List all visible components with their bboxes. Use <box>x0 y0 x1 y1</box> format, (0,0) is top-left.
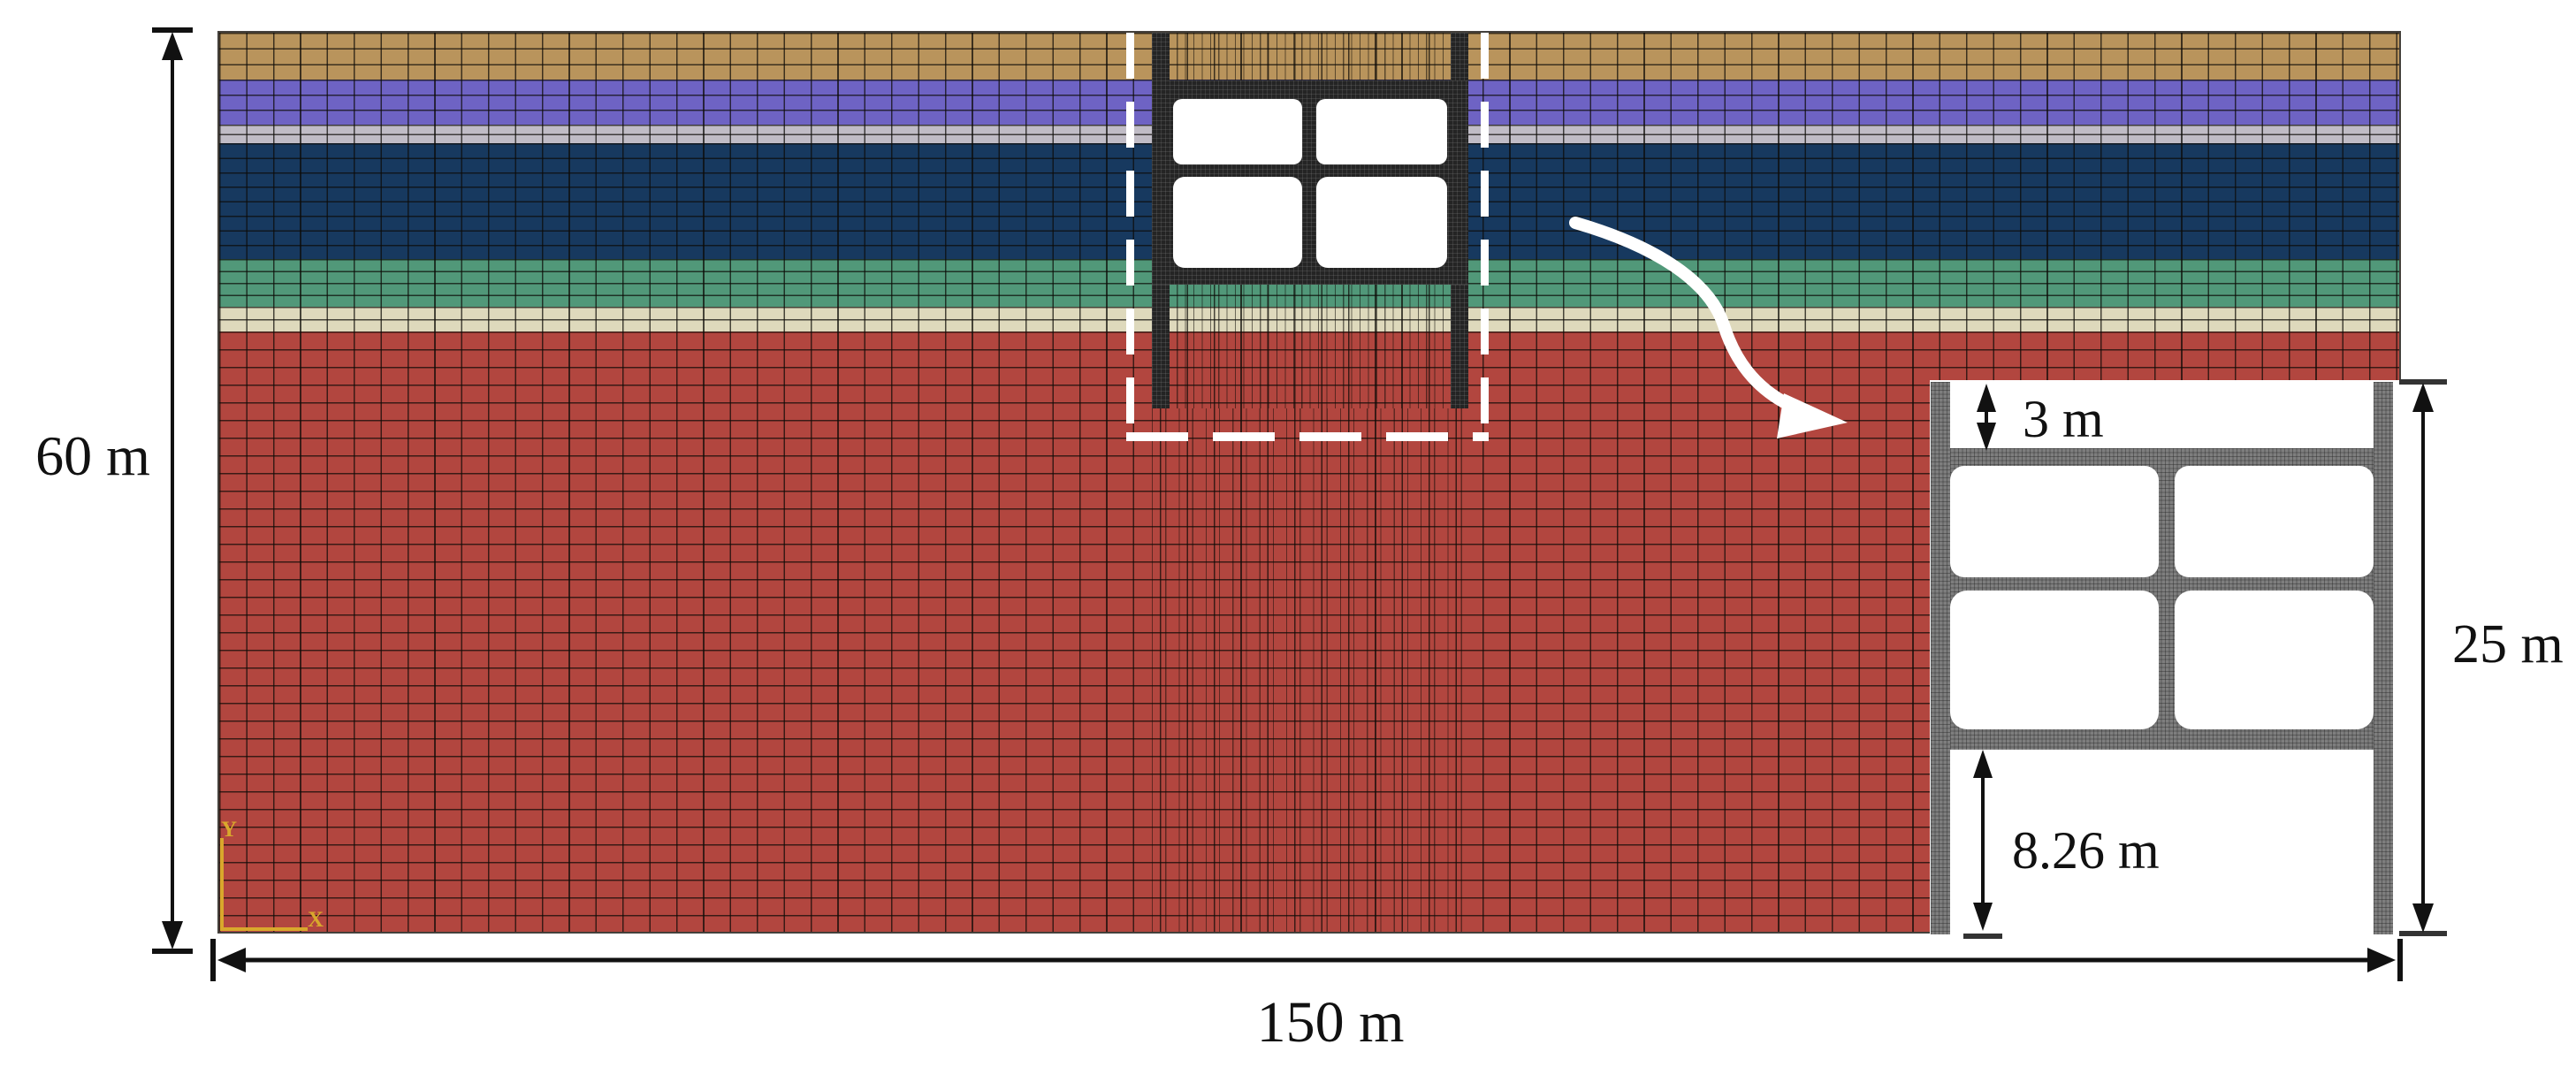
station-cell-lower-left <box>1173 177 1302 268</box>
dim-label-826m: 8.26 m <box>2012 824 2160 877</box>
x-axis-label: X <box>308 909 324 931</box>
inset-cell-lower-right <box>2175 591 2374 729</box>
callout-dashed-right <box>1481 33 1489 435</box>
callout-dashed-left <box>1126 33 1134 435</box>
callout-dashed-bottom <box>1126 432 1489 441</box>
station-cell-upper-left <box>1173 99 1302 164</box>
inset-wall-left <box>1931 382 1950 934</box>
dim-label-25m: 25 m <box>2452 617 2564 672</box>
dim60-arrow-down <box>162 921 183 949</box>
inset-wall-right <box>2374 382 2393 934</box>
dim-label-3m: 3 m <box>2023 393 2104 446</box>
dim-label-150m: 150 m <box>1233 994 1428 1052</box>
inset-cell-upper-right <box>2175 466 2374 577</box>
inset-cell-lower-left <box>1950 591 2159 729</box>
dim60-arrow-up <box>162 32 183 60</box>
dim150-arrow-left <box>217 948 246 972</box>
dim60-top-tick <box>152 27 193 33</box>
station-cell-upper-right <box>1316 99 1447 164</box>
dim-label-60m: 60 m <box>31 428 155 484</box>
fem-mesh-figure: 60 m 150 m 3 m 25 m 8.26 m Y X <box>0 0 2576 1090</box>
station-cell-lower-right <box>1316 177 1447 268</box>
refined-mesh-band-lower <box>1152 408 1468 932</box>
y-axis-label: Y <box>221 819 237 841</box>
dim150-left-tick <box>210 939 216 981</box>
dim60-bottom-tick <box>152 949 193 954</box>
inset-cell-upper-left <box>1950 466 2159 577</box>
